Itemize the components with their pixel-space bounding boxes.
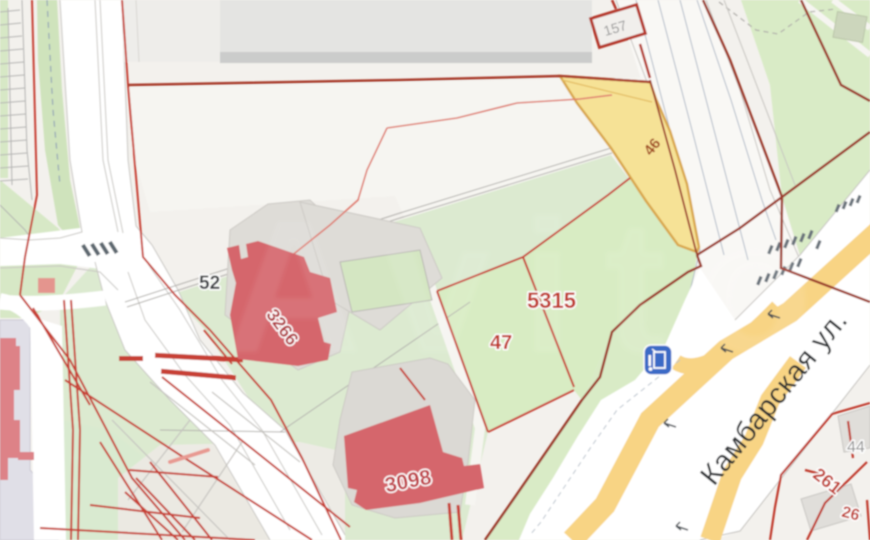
svg-text:Avito: Avito [225,181,843,393]
svg-text:44: 44 [847,439,865,456]
svg-text:5315: 5315 [527,288,576,313]
svg-text:47: 47 [490,332,512,354]
svg-text:52: 52 [199,273,220,294]
